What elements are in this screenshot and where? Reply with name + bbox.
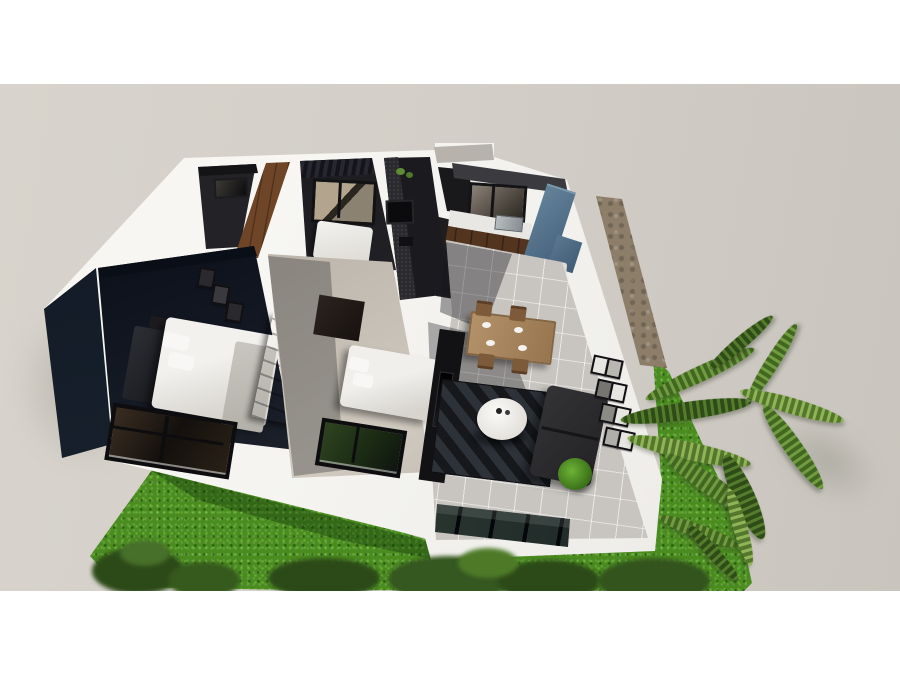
shrub-7: [458, 548, 518, 578]
coffee-table-decor-2: [505, 410, 510, 415]
place-setting-3: [486, 340, 495, 346]
letterbox-top: [0, 0, 900, 84]
letterbox-bottom: [0, 591, 900, 675]
dining-chair-1: [475, 300, 493, 317]
bathroom-vent: [399, 237, 413, 246]
bedroom2-window: [311, 178, 377, 225]
backyard-plant-tip-2: [406, 172, 413, 178]
place-setting-1: [482, 322, 491, 328]
shrub-8: [120, 540, 170, 566]
dining-chair-2: [509, 305, 527, 322]
dining-chair-4: [511, 358, 529, 375]
dining-chair-3: [477, 353, 495, 370]
master-frame-3: [224, 301, 244, 324]
coffee-table-decor-1: [496, 408, 502, 414]
bathroom-window: [386, 200, 415, 225]
bedroom3-door: [313, 295, 365, 342]
place-setting-2: [514, 327, 523, 333]
living-plant: [558, 458, 592, 490]
render-stage: [0, 0, 900, 675]
backyard-plant-tip-1: [396, 168, 405, 175]
place-setting-4: [518, 345, 527, 351]
closet-window: [213, 177, 248, 199]
coffee-table: [477, 398, 527, 440]
kitchen-sink: [494, 215, 523, 233]
